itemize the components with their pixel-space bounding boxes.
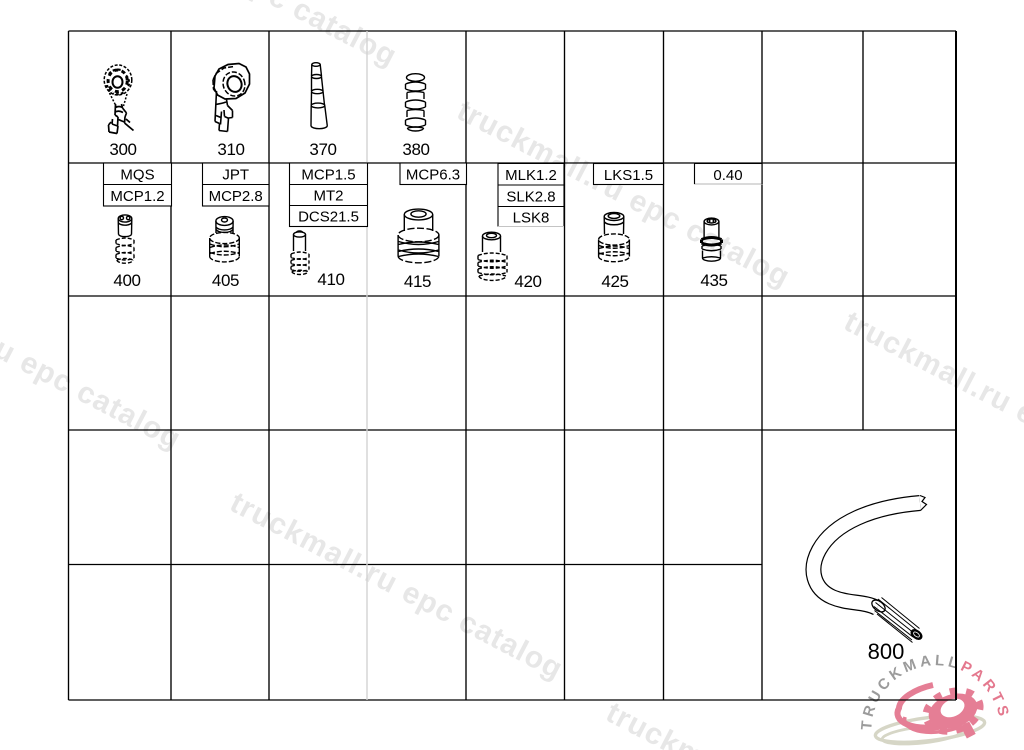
svg-text:300: 300 xyxy=(109,140,136,159)
svg-text:MCP1.2: MCP1.2 xyxy=(110,188,164,205)
svg-text:435: 435 xyxy=(700,271,727,290)
svg-text:MQS: MQS xyxy=(120,167,154,184)
svg-text:MCP2.8: MCP2.8 xyxy=(209,188,263,205)
svg-text:truckmall.ru epc catalog: truckmall.ru epc catalog xyxy=(59,0,403,73)
svg-text:DCS21.5: DCS21.5 xyxy=(298,209,359,226)
svg-text:425: 425 xyxy=(601,272,628,291)
svg-text:truckmall.ru epc catalog: truckmall.ru epc catalog xyxy=(225,486,569,686)
svg-text:truckmall.ru epc catalog: truckmall.ru epc catalog xyxy=(839,305,1024,505)
svg-text:LKS1.5: LKS1.5 xyxy=(604,167,653,184)
svg-text:SLK2.8: SLK2.8 xyxy=(506,189,555,206)
svg-text:MCP1.5: MCP1.5 xyxy=(301,167,355,184)
svg-text:LSK8: LSK8 xyxy=(513,210,550,227)
svg-text:420: 420 xyxy=(514,272,541,291)
svg-text:0.40: 0.40 xyxy=(713,167,742,184)
svg-text:400: 400 xyxy=(113,271,140,290)
svg-text:MT2: MT2 xyxy=(314,188,344,205)
svg-text:310: 310 xyxy=(217,140,244,159)
svg-text:truckmall.ru epc catalog: truckmall.ru epc catalog xyxy=(0,256,186,456)
svg-text:410: 410 xyxy=(317,270,344,289)
svg-text:380: 380 xyxy=(402,140,429,159)
svg-text:JPT: JPT xyxy=(222,167,249,184)
svg-text:370: 370 xyxy=(309,140,336,159)
svg-text:405: 405 xyxy=(212,271,239,290)
svg-text:800: 800 xyxy=(868,639,905,664)
svg-text:MLK1.2: MLK1.2 xyxy=(505,167,557,184)
svg-text:415: 415 xyxy=(404,272,431,291)
svg-text:MCP6.3: MCP6.3 xyxy=(406,167,460,184)
